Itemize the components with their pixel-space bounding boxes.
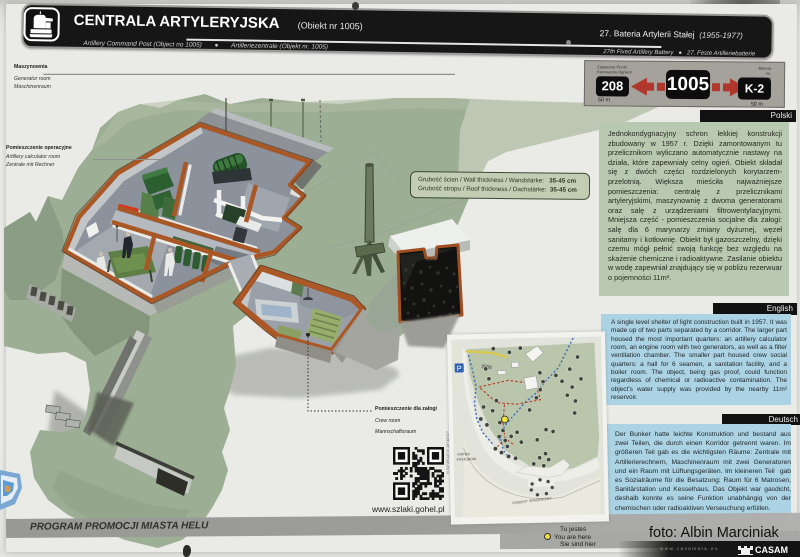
svg-text:P: P [457,364,462,373]
svg-text:KOPIEC: KOPIEC [457,452,470,456]
svg-text:KASZUBÓW: KASZUBÓW [457,456,477,461]
svg-text:CASAM: CASAM [755,545,788,555]
